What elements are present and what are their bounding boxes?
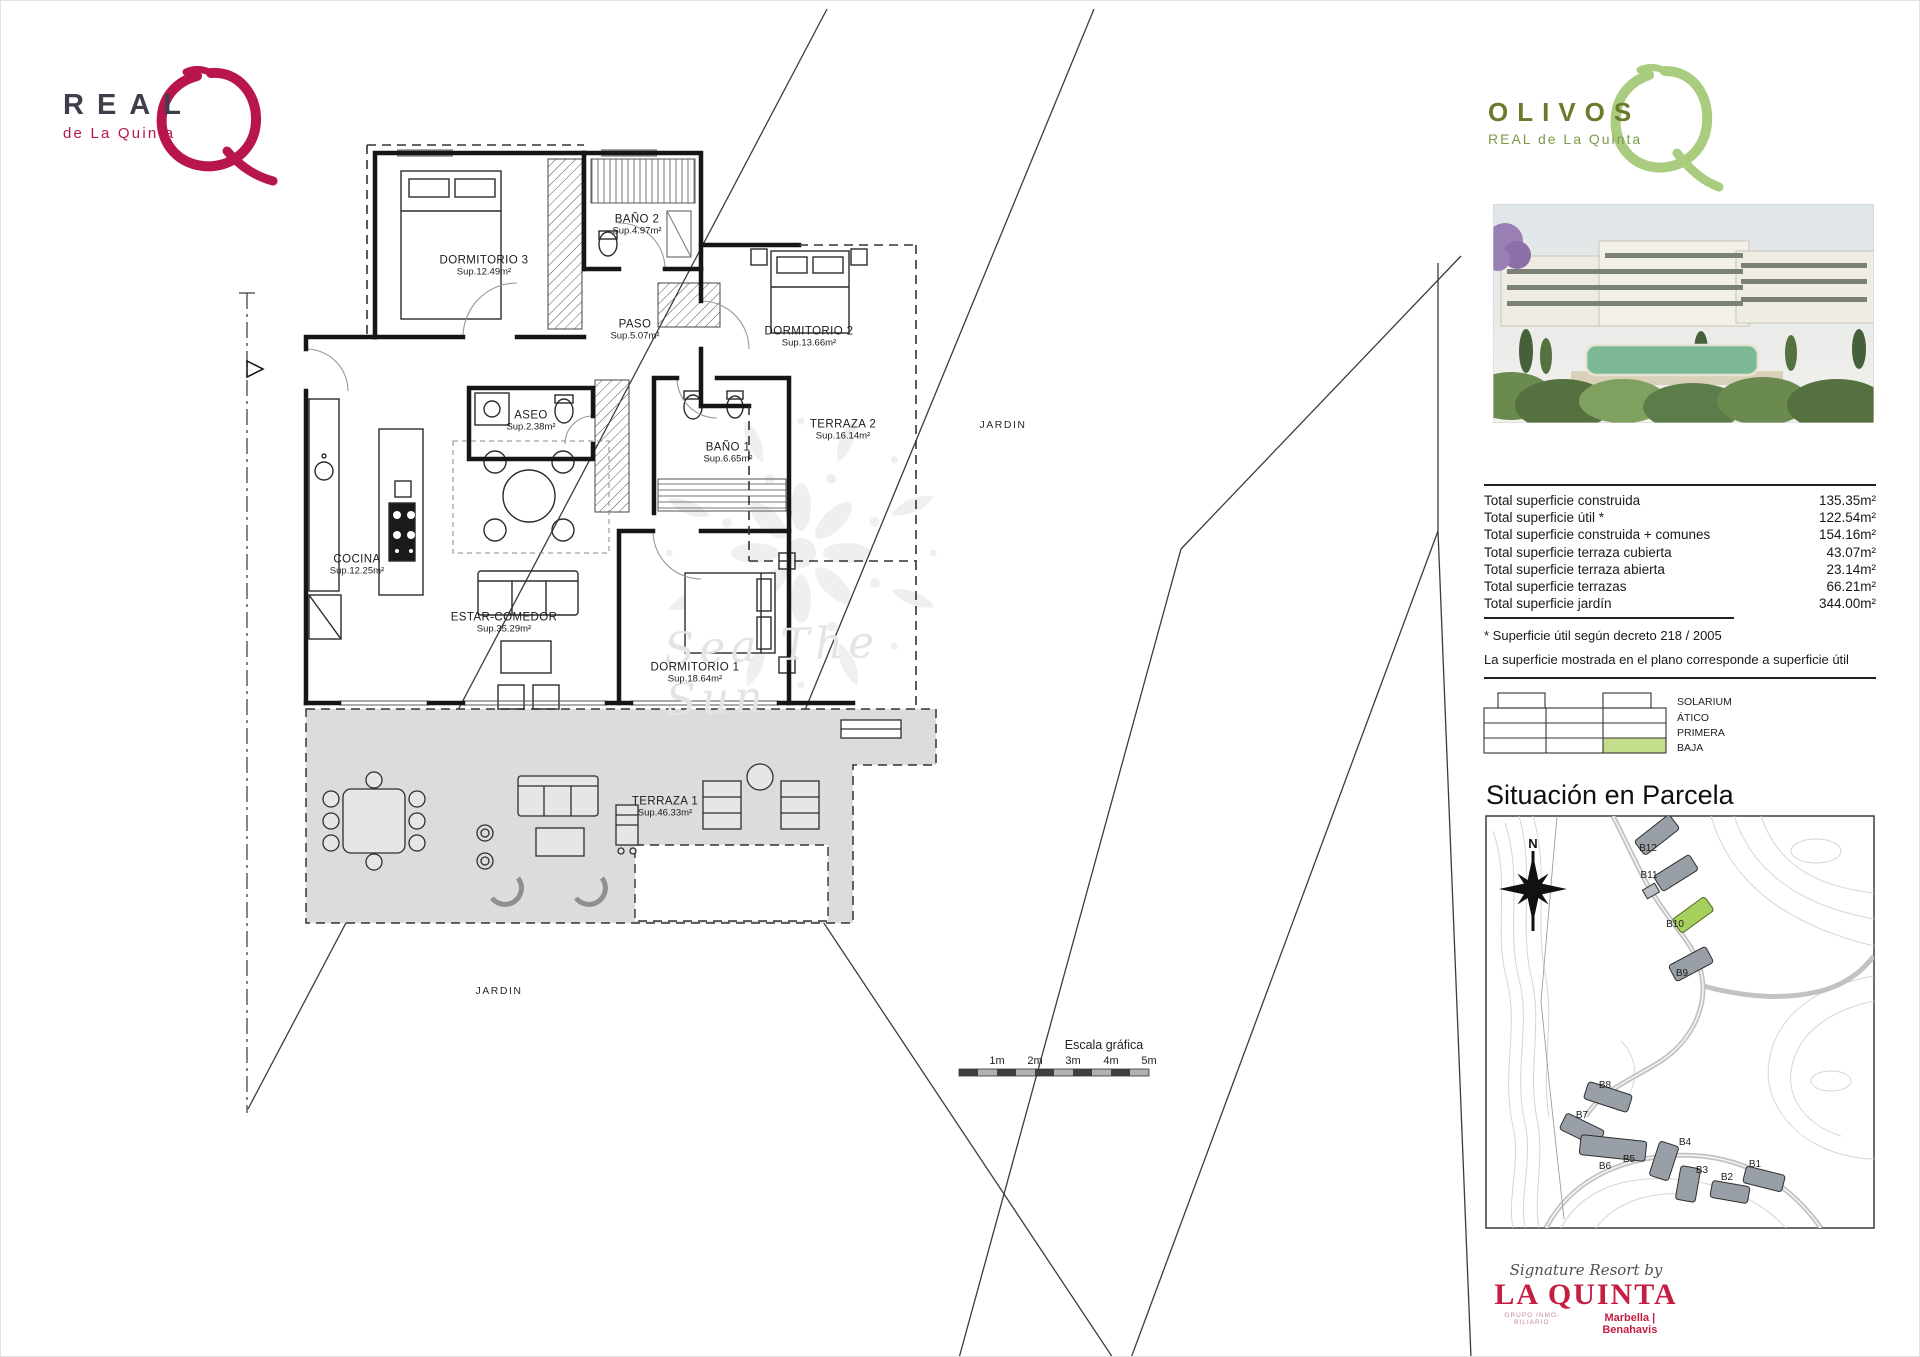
logo-la-quinta-footer: Signature Resort by LA QUINTA GRUPO INMO… [1488, 1261, 1684, 1336]
room-label-aseo: ASEOSup.2.38m² [506, 410, 555, 433]
logo-real-de-la-quinta: REAL de La Quinta [63, 89, 194, 142]
svg-text:B10: B10 [1666, 919, 1684, 930]
property-photo [1469, 204, 1887, 431]
svg-text:PRIMERA: PRIMERA [1677, 727, 1725, 739]
svg-text:B12: B12 [1639, 843, 1657, 854]
svg-text:B7: B7 [1576, 1110, 1589, 1121]
room-label-bano-1: BAÑO 1Sup.6.65m² [703, 442, 752, 465]
svg-text:4m: 4m [1103, 1055, 1118, 1067]
svg-text:B8: B8 [1599, 1080, 1612, 1091]
table-row: Total superficie jardín344.00m² [1484, 595, 1876, 612]
svg-text:B9: B9 [1676, 968, 1689, 979]
table-row: Total superficie construida135.35m² [1484, 492, 1876, 509]
svg-text:ÁTICO: ÁTICO [1677, 711, 1709, 724]
svg-text:SOLARIUM: SOLARIUM [1677, 696, 1732, 708]
surface-summary-table: Total superficie construida135.35m² Tota… [1484, 484, 1876, 679]
room-label-dormitorio-3: DORMITORIO 3Sup.12.49m² [440, 255, 529, 278]
property-line-dashdot [239, 293, 255, 1113]
room-label-terraza-2: TERRAZA 2Sup.16.14m² [810, 419, 876, 442]
room-label-bano-2: BAÑO 2Sup.4.97m² [612, 214, 661, 237]
levels-diagram: SOLARIUM ÁTICO PRIMERA BAJA [1484, 693, 1732, 754]
terrace1-open-area [635, 845, 828, 921]
scale-bar: Escala gráfica 1m 2m 3m 4m 5m [959, 1038, 1157, 1076]
table-row: Total superficie terrazas66.21m² [1484, 578, 1876, 595]
table-row: Total superficie terraza cubierta43.07m² [1484, 544, 1876, 561]
svg-text:1m: 1m [989, 1055, 1004, 1067]
site-map: B12 B11 B10 B9 B8 B7 B6 B5 B4 B3 B2 B1 N [1486, 814, 1874, 1228]
divider [1484, 617, 1734, 619]
svg-text:B1: B1 [1749, 1159, 1762, 1170]
footer-grupo-label: GRUPO INMO­BILIARIO [1488, 1312, 1576, 1326]
svg-text:B4: B4 [1679, 1137, 1692, 1148]
jardin-label-east: JARDIN [980, 419, 1027, 431]
brand-name: REAL [63, 89, 194, 122]
footnote: La superficie mostrada en el plano corre… [1484, 652, 1876, 667]
footer-script-line: Signature Resort by [1488, 1261, 1684, 1279]
brand-tagline: de La Quinta [63, 125, 194, 142]
footer-brand-name: LA QUINTA [1488, 1280, 1684, 1310]
svg-text:BAJA: BAJA [1677, 742, 1703, 754]
room-label-cocina: COCINASup.12.25m² [330, 554, 384, 577]
footnote: * Superficie útil según decreto 218 / 20… [1484, 628, 1876, 643]
room-label-estar-comedor: ESTAR-COMEDORSup.35.29m² [451, 612, 558, 635]
svg-text:B6: B6 [1599, 1161, 1612, 1172]
room-label-terraza-1: TERRAZA 1Sup.46.33m² [632, 796, 698, 819]
svg-text:5m: 5m [1141, 1055, 1156, 1067]
svg-text:N: N [1528, 836, 1537, 851]
table-row: Total superficie terraza abierta23.14m² [1484, 561, 1876, 578]
brand-name: OLIVOS [1488, 97, 1642, 128]
table-row: Total superficie construida + comunes154… [1484, 526, 1876, 543]
svg-text:2m: 2m [1027, 1055, 1042, 1067]
svg-text:B5: B5 [1623, 1154, 1636, 1165]
footer-location-label: Marbella | Benahavis [1576, 1312, 1684, 1336]
svg-text:3m: 3m [1065, 1055, 1080, 1067]
room-label-dormitorio-2: DORMITORIO 2Sup.13.66m² [765, 326, 854, 349]
svg-text:B11: B11 [1640, 870, 1657, 881]
svg-text:B2: B2 [1721, 1172, 1734, 1183]
entrance-arrow-icon [247, 361, 263, 377]
table-row: Total superficie útil *122.54m² [1484, 509, 1876, 526]
room-label-paso: PASOSup.5.07m² [610, 319, 659, 342]
section-heading-situacion: Situación en Parcela [1486, 780, 1734, 811]
svg-text:B3: B3 [1696, 1165, 1709, 1176]
room-label-dormitorio-1: DORMITORIO 1Sup.18.64m² [651, 662, 740, 685]
jardin-label-south: JARDIN [476, 985, 523, 997]
brand-tagline: REAL de La Quinta [1488, 131, 1642, 147]
divider [1484, 677, 1876, 679]
scale-title: Escala gráfica [1065, 1038, 1144, 1052]
floorplan-sheet: Escala gráfica 1m 2m 3m 4m 5m [0, 0, 1920, 1357]
logo-olivos: OLIVOS REAL de La Quinta [1488, 97, 1642, 147]
